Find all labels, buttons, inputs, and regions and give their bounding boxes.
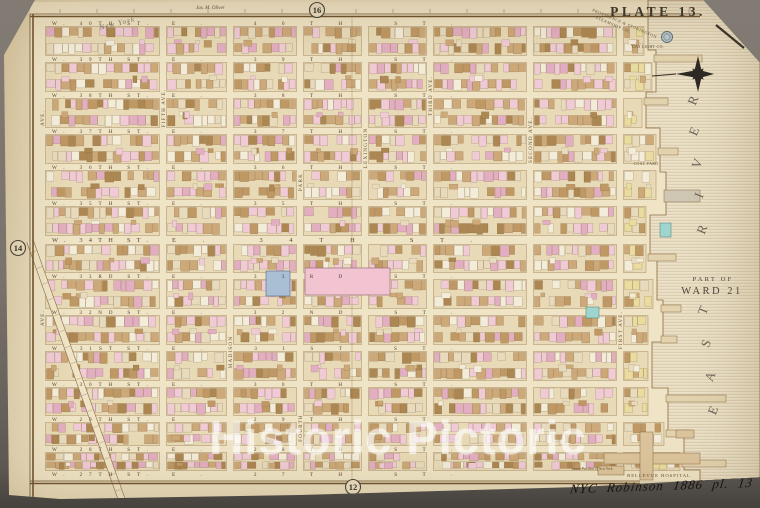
building-lot [370, 208, 375, 217]
building-lot [106, 317, 115, 328]
building-lot [318, 44, 323, 54]
building-lot [111, 454, 116, 462]
building-lot [168, 64, 173, 72]
building-lot [282, 208, 287, 217]
building-lot [152, 281, 158, 289]
building-lot [625, 281, 633, 290]
building-lot [153, 224, 158, 232]
building-lot [463, 246, 469, 256]
building-lot [61, 136, 68, 147]
building-lot [212, 281, 220, 290]
building-lot [168, 188, 174, 198]
building-lot [376, 28, 381, 36]
building-lot [206, 136, 212, 146]
building-lot [202, 353, 207, 361]
building-lot [241, 389, 246, 398]
building-lot [176, 246, 181, 256]
building-lot [202, 208, 210, 219]
building-lot [66, 208, 71, 218]
building-lot [282, 224, 289, 233]
building-lot [498, 116, 506, 125]
building-lot [101, 297, 108, 305]
building-lot [143, 208, 148, 219]
building-lot [535, 80, 543, 89]
building-lot [499, 172, 507, 181]
building-lot [642, 172, 650, 183]
building-lot [422, 172, 426, 181]
building-lot [146, 116, 151, 125]
building-lot [357, 28, 361, 36]
building-lot [568, 261, 577, 269]
building-lot [221, 136, 226, 146]
plate-title: PLATE 13. [610, 4, 706, 19]
building-lot [74, 389, 79, 399]
building-lot [305, 188, 312, 198]
building-lot [114, 172, 121, 181]
building-lot [235, 100, 241, 109]
building-lot [390, 116, 395, 126]
building-lot [250, 317, 256, 325]
building-lot [395, 116, 404, 127]
building-lot [572, 369, 577, 380]
building-lot [81, 188, 87, 197]
building-lot [613, 317, 616, 326]
building-lot [266, 353, 272, 361]
building-lot [76, 80, 85, 88]
building-lot [130, 64, 138, 72]
building-lot [474, 208, 481, 219]
building-lot [52, 435, 59, 444]
building-lot [311, 317, 318, 326]
building-lot [435, 64, 441, 72]
building-lot [478, 261, 484, 270]
building-lot [560, 64, 568, 74]
building-lot [392, 389, 401, 398]
building-lot [510, 208, 516, 218]
building-lot [69, 333, 78, 343]
building-lot [113, 224, 118, 234]
building-lot [576, 100, 585, 108]
building-lot [215, 246, 220, 256]
building-lot [86, 224, 92, 233]
building-lot [277, 365, 282, 370]
building-lot [535, 297, 541, 307]
building-lot [578, 44, 583, 52]
building-lot [399, 317, 406, 326]
building-lot [449, 258, 456, 262]
building-lot [504, 148, 510, 152]
building-lot [196, 40, 200, 44]
building-lot [93, 317, 99, 327]
building-lot [133, 317, 139, 327]
building-lot [54, 208, 59, 218]
building-lot [208, 149, 213, 153]
building-lot [482, 246, 491, 256]
building-lot [208, 329, 216, 334]
building-lot [195, 28, 200, 37]
building-lot [454, 369, 462, 379]
building-lot [128, 172, 134, 180]
building-lot [151, 333, 159, 342]
building-lot [235, 188, 243, 198]
building-lot [249, 136, 257, 145]
building-lot [332, 188, 339, 196]
building-lot [501, 297, 506, 307]
building-lot [235, 208, 241, 216]
building-lot [284, 261, 290, 269]
building-lot [435, 369, 441, 379]
building-lot [55, 64, 61, 74]
building-lot [135, 261, 140, 270]
building-lot [75, 44, 82, 52]
building-lot [317, 246, 326, 257]
avenue-label: FIRST AVE. [618, 311, 624, 349]
building-lot [506, 389, 511, 398]
building-lot [548, 224, 553, 233]
building-lot [53, 152, 58, 161]
building-lot [521, 369, 525, 379]
building-lot [258, 208, 266, 217]
building-lot [78, 333, 85, 341]
building-lot [114, 297, 121, 308]
building-lot [221, 116, 225, 127]
building-lot [535, 369, 543, 380]
building-lot [55, 246, 64, 256]
building-lot [380, 112, 388, 118]
building-lot [389, 188, 398, 196]
building-lot [535, 28, 541, 36]
building-lot [506, 116, 512, 124]
building-lot [132, 28, 138, 37]
building-lot [336, 44, 342, 55]
building-lot [640, 281, 649, 291]
building-lot [481, 208, 487, 219]
building-lot [212, 224, 219, 235]
building-lot [591, 246, 600, 255]
building-lot [319, 188, 325, 197]
building-lot [571, 40, 578, 46]
building-lot [241, 261, 248, 272]
building-lot [385, 353, 394, 362]
building-lot [400, 172, 406, 180]
building-lot [334, 333, 340, 341]
building-lot [119, 261, 125, 270]
building-lot [216, 208, 222, 219]
building-lot [586, 188, 594, 199]
building-lot [305, 317, 312, 325]
building-lot [435, 80, 443, 88]
building-lot [419, 224, 425, 235]
building-lot [172, 220, 176, 227]
building-lot [625, 317, 633, 327]
building-lot [477, 224, 483, 235]
building-lot [646, 136, 654, 145]
building-lot [612, 297, 615, 305]
building-lot [344, 258, 351, 264]
building-lot [465, 317, 470, 327]
building-lot [506, 261, 513, 269]
building-lot [235, 116, 241, 126]
building-lot [597, 28, 604, 37]
building-lot [478, 281, 486, 290]
building-lot [178, 281, 183, 291]
building-lot [458, 281, 465, 290]
coal-yard-label: COAL YARD [634, 162, 659, 166]
building-lot [542, 353, 547, 362]
building-lot [402, 261, 408, 270]
building-lot [607, 64, 614, 74]
building-lot [96, 404, 102, 413]
building-lot [474, 333, 480, 343]
building-lot [323, 44, 330, 53]
building-lot [312, 188, 319, 198]
building-lot [376, 317, 383, 328]
building-lot [265, 152, 271, 162]
building-lot [586, 369, 592, 378]
building-lot [94, 333, 101, 342]
building-lot [512, 389, 518, 397]
building-lot [321, 224, 330, 232]
building-lot [243, 224, 250, 233]
building-lot [602, 116, 607, 126]
building-lot [87, 369, 95, 379]
building-lot [116, 148, 123, 155]
building-lot [630, 76, 637, 80]
building-lot [599, 208, 608, 217]
building-lot [568, 281, 575, 289]
building-lot [566, 184, 575, 189]
building-lot [341, 100, 346, 108]
building-lot [405, 44, 412, 54]
building-lot [449, 353, 454, 362]
building-lot [500, 389, 506, 399]
building-lot [253, 297, 260, 306]
building-lot [155, 208, 159, 216]
building-lot [579, 401, 587, 406]
building-lot [121, 281, 126, 292]
building-lot [336, 64, 341, 73]
building-lot [375, 208, 382, 217]
building-lot [244, 353, 253, 363]
building-lot [383, 224, 389, 234]
building-lot [122, 64, 129, 73]
building-lot [542, 172, 551, 181]
building-lot [464, 261, 469, 271]
building-lot [274, 246, 281, 256]
building-lot [605, 76, 613, 81]
building-lot [380, 76, 388, 83]
building-lot [535, 317, 544, 326]
building-lot [517, 136, 522, 146]
building-lot [514, 44, 522, 54]
building-lot [75, 462, 82, 469]
building-lot [174, 40, 181, 44]
building-lot [415, 333, 420, 341]
building-lot [506, 281, 514, 292]
building-lot [181, 246, 188, 254]
building-lot [310, 246, 316, 256]
building-lot [591, 208, 599, 217]
building-lot [455, 261, 464, 269]
building-lot [73, 454, 80, 461]
building-lot [435, 389, 442, 397]
building-lot [141, 258, 150, 264]
building-lot [240, 116, 246, 124]
building-lot [222, 208, 226, 217]
building-lot [639, 64, 645, 73]
building-lot [535, 136, 542, 147]
building-lot [75, 116, 83, 125]
building-lot [458, 136, 463, 144]
building-lot [515, 333, 523, 341]
building-lot [207, 369, 212, 378]
building-lot [240, 172, 249, 182]
building-lot [83, 44, 91, 53]
building-lot [334, 100, 342, 110]
building-lot [477, 28, 483, 38]
building-lot [257, 136, 262, 144]
building-lot [246, 297, 253, 306]
building-lot [112, 116, 120, 124]
building-lot [201, 64, 207, 74]
building-lot [340, 220, 345, 226]
building-lot [603, 333, 609, 344]
building-lot [391, 333, 399, 342]
building-lot [269, 369, 277, 378]
building-lot [314, 401, 322, 407]
building-lot [256, 28, 262, 37]
building-lot [88, 208, 93, 219]
building-lot [138, 64, 144, 74]
building-lot [267, 246, 273, 256]
building-lot [535, 44, 540, 52]
building-lot [94, 208, 100, 219]
building-lot [172, 329, 179, 335]
building-lot [495, 297, 500, 306]
building-lot [280, 172, 286, 181]
building-lot [70, 28, 78, 36]
building-lot [612, 353, 616, 363]
building-lot [417, 80, 422, 89]
building-lot [174, 188, 182, 196]
building-lot [370, 172, 379, 180]
building-lot [102, 188, 109, 196]
building-lot [235, 172, 240, 181]
building-lot [243, 317, 249, 326]
building-lot [414, 64, 419, 73]
building-lot [59, 389, 67, 400]
building-lot [335, 28, 341, 39]
building-lot [100, 317, 107, 328]
building-lot [412, 246, 420, 255]
building-lot [91, 221, 99, 225]
building-lot [519, 64, 526, 72]
building-lot [450, 261, 455, 270]
building-lot [91, 44, 98, 52]
building-lot [333, 258, 339, 264]
building-lot [488, 208, 494, 216]
building-lot [495, 333, 501, 341]
building-lot [370, 64, 378, 74]
building-lot [249, 369, 256, 378]
building-lot [547, 246, 552, 256]
building-lot [442, 389, 448, 400]
building-lot [342, 297, 349, 305]
building-lot [396, 136, 405, 146]
building-lot [509, 333, 514, 342]
building-lot [444, 100, 452, 109]
building-lot [220, 80, 225, 88]
building-lot [311, 152, 317, 161]
building-lot [168, 317, 175, 325]
building-lot [105, 224, 113, 232]
building-lot [59, 435, 66, 444]
building-lot [459, 208, 468, 217]
building-lot [576, 281, 581, 289]
building-lot [194, 44, 199, 52]
building-lot [305, 116, 313, 124]
building-lot [247, 281, 255, 291]
building-lot [53, 404, 61, 414]
building-lot [139, 40, 144, 45]
building-lot [370, 80, 377, 89]
building-lot [639, 152, 645, 162]
building-lot [70, 80, 76, 91]
building-lot [414, 389, 422, 397]
building-lot [200, 136, 206, 144]
building-lot [305, 389, 310, 399]
building-lot [202, 317, 210, 326]
building-lot [78, 28, 83, 38]
building-lot [189, 293, 194, 300]
building-lot [596, 281, 601, 291]
building-lot [195, 100, 200, 111]
building-lot [566, 333, 572, 342]
building-lot [188, 136, 193, 144]
building-lot [446, 148, 453, 152]
building-lot [285, 353, 293, 362]
svg-text:16: 16 [313, 5, 322, 15]
building-lot [109, 258, 114, 262]
building-lot [285, 64, 293, 74]
building-lot [312, 172, 320, 180]
building-lot [217, 389, 226, 399]
building-lot [421, 246, 426, 257]
building-lot [83, 353, 88, 361]
building-lot [311, 333, 316, 343]
page-ref-left: 14 [11, 241, 26, 256]
building-lot [599, 136, 605, 145]
building-lot [470, 64, 475, 74]
building-lot [604, 28, 612, 38]
building-lot [47, 64, 55, 72]
building-lot [120, 116, 129, 126]
building-lot [412, 297, 418, 306]
building-lot [261, 317, 266, 327]
building-lot [305, 333, 311, 343]
building-lot [632, 136, 639, 147]
building-lot [143, 136, 152, 147]
building-lot [241, 100, 248, 108]
building-lot [283, 116, 290, 126]
building-lot [417, 365, 422, 370]
building-lot [316, 148, 321, 152]
building-lot [498, 353, 506, 361]
building-lot [187, 317, 195, 325]
building-lot [47, 353, 55, 363]
building-lot [549, 100, 555, 109]
building-lot [501, 369, 508, 377]
